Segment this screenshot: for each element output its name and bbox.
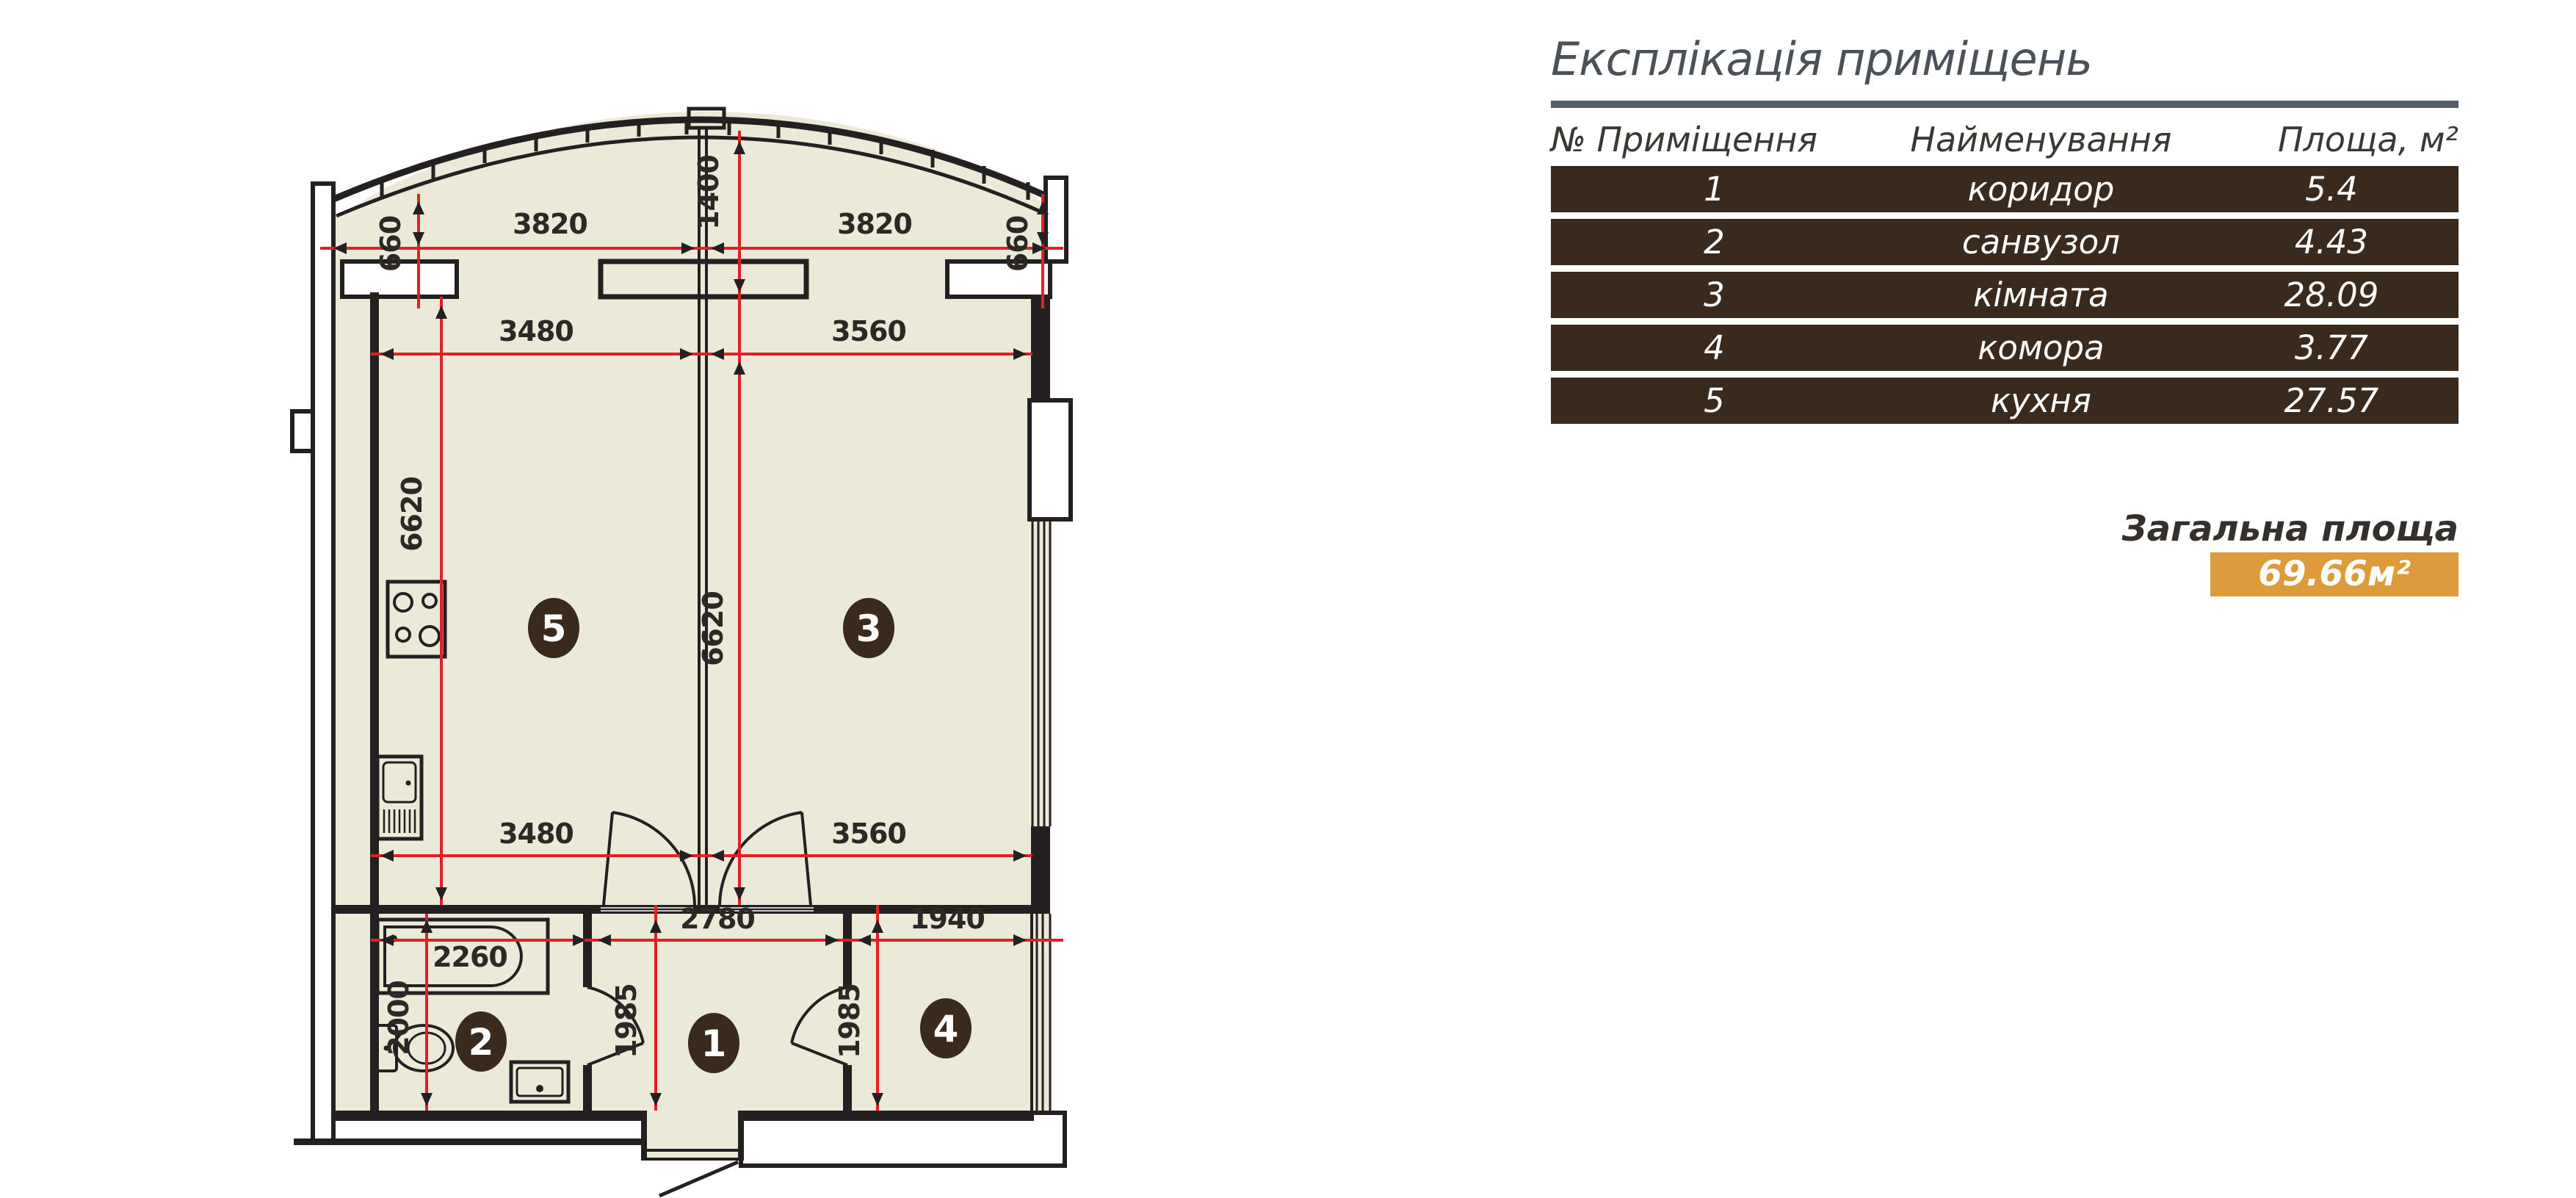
dim-kitchen-width-top: 3480 (499, 315, 574, 347)
dim-kitchen-width-bottom: 3480 (499, 818, 574, 850)
dim-hall-depth: 1985 (610, 984, 643, 1058)
table-row: 4 комора 3.77 (1551, 325, 2459, 371)
bath-badge-number: 2 (468, 1021, 494, 1064)
hall-storage-wall-upper (843, 905, 852, 987)
dim-top-width-left: 3820 (513, 208, 587, 240)
row-name: кімната (1878, 275, 2204, 314)
row-name: коридор (1878, 170, 2204, 209)
row-name: комора (1878, 328, 2204, 367)
dim-storage-depth: 1985 (833, 984, 866, 1058)
row-number: 2 (1551, 223, 1878, 261)
dim-storage-width: 1940 (910, 903, 985, 935)
row-number: 1 (1551, 170, 1878, 209)
left-outer-wall (313, 184, 333, 1141)
bottom-wall-left (333, 1111, 644, 1121)
dim-bath-length: 2260 (433, 941, 507, 973)
table-row: 1 коридор 5.4 (1551, 166, 2459, 212)
bottom-left-band (294, 1139, 644, 1145)
right-wall-lower (1031, 826, 1050, 914)
table-row: 5 кухня 27.57 (1551, 378, 2459, 424)
hall-badge-number: 1 (701, 1022, 727, 1065)
total-area-badge: 69.66м² (2210, 552, 2459, 596)
hall-storage-wall-lower (843, 1065, 852, 1111)
floor-plan: 660 3820 1400 3820 660 3480 3560 6620 66… (279, 88, 1101, 1198)
legend-title-underline (1551, 101, 2459, 108)
dim-bath-depth: 2000 (383, 981, 415, 1056)
kitchen-badge-number: 5 (541, 607, 567, 650)
bottom-wall-right (741, 1111, 1034, 1121)
header-number: № Приміщення (1551, 120, 1878, 159)
legend-header: № Приміщення Найменування Площа, м² (1551, 119, 2459, 160)
row-number: 4 (1551, 328, 1878, 367)
dim-right-offset: 660 (1002, 216, 1034, 272)
row-name: санвузол (1878, 223, 2204, 261)
legend-title: Експлікація приміщень (1551, 32, 2461, 86)
dim-living-height: 6620 (697, 591, 729, 666)
bath-hall-wall-lower (583, 1065, 592, 1111)
legend-rows: 1 коридор 5.4 2 санвузол 4.43 3 кімната … (1551, 166, 2459, 430)
header-area: Площа, м² (2204, 120, 2459, 159)
table-row: 3 кімната 28.09 (1551, 272, 2459, 318)
left-wall-notch (292, 411, 313, 451)
dim-living-width-bottom: 3560 (831, 818, 906, 850)
row-name: кухня (1878, 381, 2204, 420)
dim-bay-depth: 1400 (692, 155, 725, 230)
row-area: 28.09 (2204, 275, 2459, 314)
entry-door-swing (659, 1162, 738, 1196)
dim-top-width-right: 3820 (837, 208, 912, 240)
storage-badge-number: 4 (933, 1008, 959, 1050)
dim-living-width-top: 3560 (831, 315, 906, 347)
row-area: 5.4 (2204, 170, 2459, 209)
bath-hall-wall-upper (583, 905, 592, 987)
row-area: 27.57 (2204, 381, 2459, 420)
row-number: 5 (1551, 381, 1878, 420)
total-area-label: Загальна площа (1551, 508, 2459, 549)
header-name: Найменування (1878, 120, 2204, 159)
page: 660 3820 1400 3820 660 3480 3560 6620 66… (0, 0, 2576, 1198)
right-wall-jog (1030, 400, 1071, 519)
row-area: 3.77 (2204, 328, 2459, 367)
table-row: 2 санвузол 4.43 (1551, 219, 2459, 265)
living-badge-number: 3 (856, 607, 882, 650)
top-wall-center-block (601, 261, 806, 297)
dim-left-offset: 660 (375, 216, 407, 272)
dim-hall-width: 2780 (680, 903, 755, 935)
row-area: 4.43 (2204, 223, 2459, 261)
dim-kitchen-height: 6620 (396, 477, 428, 552)
lower-rooms-top-wall-left (333, 905, 598, 914)
row-number: 3 (1551, 275, 1878, 314)
top-wall-right-block (947, 261, 1050, 297)
